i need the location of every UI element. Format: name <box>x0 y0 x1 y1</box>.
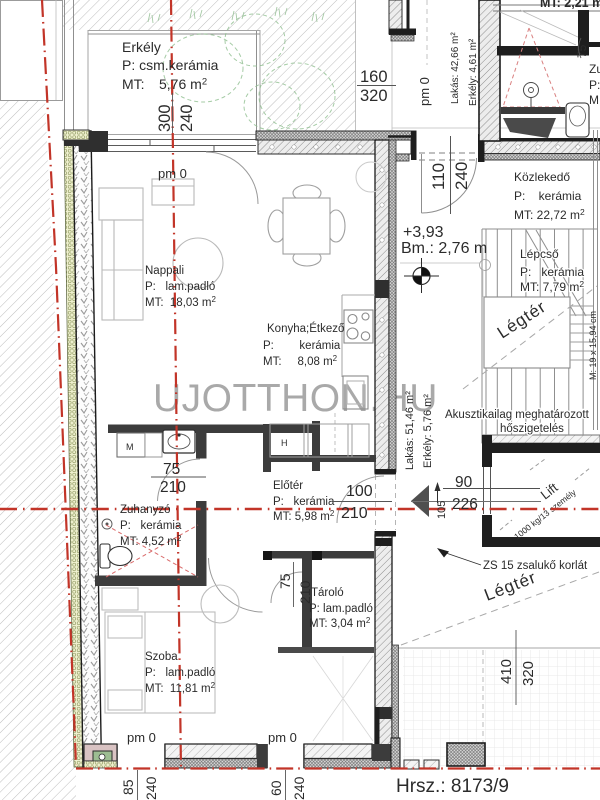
svg-text:Erkély: 5,76 m²: Erkély: 5,76 m² <box>422 394 434 468</box>
svg-text:pm 0: pm 0 <box>417 77 432 106</box>
svg-text:P: lam.padló: P: lam.padló <box>309 603 373 615</box>
svg-text:210: 210 <box>341 505 368 522</box>
svg-text:P: kerámia: P: kerámia <box>120 520 182 532</box>
svg-text:Tároló: Tároló <box>311 587 344 599</box>
svg-text:MT: 5,98 m2: MT: 5,98 m2 <box>273 509 335 523</box>
svg-text:Zuhanyzó: Zuhanyzó <box>120 504 171 516</box>
svg-text:MT: 3,04 m2: MT: 3,04 m2 <box>309 616 371 630</box>
svg-text:240: 240 <box>178 104 196 132</box>
svg-text:Közlekedő: Közlekedő <box>514 170 570 184</box>
svg-text:pm 0: pm 0 <box>127 730 156 745</box>
svg-text:P: kerámia: P: kerámia <box>273 496 335 508</box>
svg-text:M: M <box>589 93 599 107</box>
svg-text:P:: P: <box>589 78 600 92</box>
svg-text:Nappali: Nappali <box>145 265 184 277</box>
svg-text:P: kerámia: P: kerámia <box>520 265 584 279</box>
svg-text:Akusztikailag meghatározott: Akusztikailag meghatározott <box>445 409 590 421</box>
svg-text:320: 320 <box>520 661 537 686</box>
svg-text:240: 240 <box>291 776 307 800</box>
svg-text:Lépcső: Lépcső <box>520 247 559 261</box>
svg-text:P: lam.padló: P: lam.padló <box>145 667 215 679</box>
svg-text:P: kerámia: P: kerámia <box>514 189 582 203</box>
svg-text:210: 210 <box>297 580 313 604</box>
svg-text:410: 410 <box>498 659 515 684</box>
svg-text:320: 320 <box>360 87 388 105</box>
svg-text:MT: 2,21 m²: MT: 2,21 m² <box>540 0 600 10</box>
svg-text:P: csm.kerámia: P: csm.kerámia <box>122 57 219 73</box>
svg-text:pm 0: pm 0 <box>268 730 297 745</box>
svg-text:Lakás: 51,46 m²: Lakás: 51,46 m² <box>404 391 416 470</box>
svg-text:Lakás: 42,66 m²: Lakás: 42,66 m² <box>450 32 461 104</box>
svg-text:Zu: Zu <box>589 62 600 76</box>
svg-text:100: 100 <box>346 483 373 500</box>
svg-text:210: 210 <box>160 479 186 496</box>
svg-text:75: 75 <box>163 461 180 478</box>
svg-text:Erkély: 4,61 m²: Erkély: 4,61 m² <box>468 38 479 106</box>
svg-text:Hrsz.: 8173/9: Hrsz.: 8173/9 <box>396 776 509 797</box>
svg-text:Konyha;Étkező: Konyha;Étkező <box>267 322 344 335</box>
svg-text:Erkély: Erkély <box>122 39 161 55</box>
svg-text:105: 105 <box>436 501 448 519</box>
svg-text:240: 240 <box>143 776 159 800</box>
svg-text:240: 240 <box>452 162 471 190</box>
svg-text:75: 75 <box>575 44 589 58</box>
svg-text:300: 300 <box>156 104 174 132</box>
svg-text:85: 85 <box>120 779 136 795</box>
svg-text:MT: 22,72 m2: MT: 22,72 m2 <box>514 207 585 222</box>
svg-text:hőszigetelés: hőszigetelés <box>500 423 564 435</box>
svg-text:M: 19 x 15,94 cm: M: 19 x 15,94 cm <box>588 311 598 380</box>
svg-text:P: kerámia: P: kerámia <box>263 340 341 352</box>
svg-text:M: M <box>126 442 134 452</box>
svg-text:60: 60 <box>268 780 284 796</box>
svg-text:Szoba: Szoba <box>145 651 178 663</box>
svg-text:MT: 11,81 m2: MT: 11,81 m2 <box>145 681 216 695</box>
svg-text:Bm.: 2,76 m: Bm.: 2,76 m <box>401 240 487 257</box>
svg-text:90: 90 <box>455 474 473 491</box>
svg-text:MT: 8,08 m2: MT: 8,08 m2 <box>263 354 338 368</box>
svg-text:226: 226 <box>452 496 478 513</box>
svg-text:MT: 7,79 m2: MT: 7,79 m2 <box>520 279 584 294</box>
svg-text:5,76 m2: 5,76 m2 <box>159 76 207 92</box>
svg-text:110: 110 <box>429 163 448 190</box>
svg-text:H: H <box>281 438 288 448</box>
svg-text:pm 0: pm 0 <box>158 166 187 181</box>
svg-text:Előtér: Előtér <box>273 480 303 492</box>
svg-text:160: 160 <box>360 68 388 86</box>
svg-text:MT: 4,52 m2: MT: 4,52 m2 <box>120 534 182 548</box>
svg-text:75: 75 <box>277 573 293 589</box>
svg-text:P: lam.padló: P: lam.padló <box>145 281 215 293</box>
svg-text:MT:: MT: <box>122 76 145 92</box>
svg-text:+3,93: +3,93 <box>403 224 444 241</box>
svg-text:ZS 15 zsalukő korlát: ZS 15 zsalukő korlát <box>483 560 588 572</box>
svg-text:MT: 18,03 m2: MT: 18,03 m2 <box>145 295 216 309</box>
